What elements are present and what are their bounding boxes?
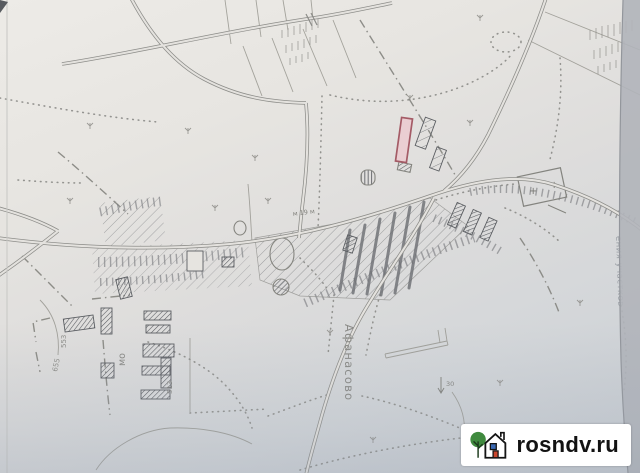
mo-label: мо	[117, 353, 128, 366]
arrow-label: 30	[446, 380, 454, 388]
cadastral-plan: + +	[0, 0, 640, 473]
parcel-number: 655	[51, 358, 62, 373]
parcel-number: 513	[166, 381, 174, 394]
map-photo: + +	[0, 0, 640, 473]
village-label: Афанасово	[342, 324, 356, 401]
cemetery-cross-icon: +	[529, 186, 537, 197]
road-width-label: м 19 м	[292, 207, 315, 218]
tree-house-logo-icon	[469, 429, 509, 461]
highlighted-plot	[395, 117, 412, 162]
watermark: rosndv.ru	[461, 424, 631, 466]
parcel-number: 553	[60, 335, 68, 348]
survey-arrow: 30	[438, 377, 454, 393]
watermark-text: rosndv.ru	[516, 434, 619, 456]
